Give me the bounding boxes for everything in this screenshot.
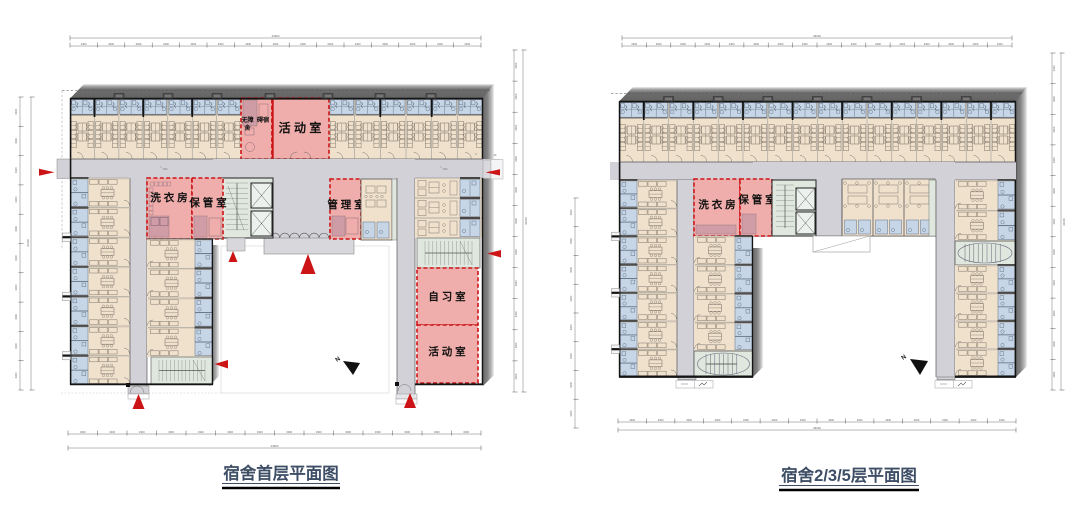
svg-text:3300: 3300: [257, 430, 263, 434]
svg-text:舍: 舍: [243, 124, 251, 132]
svg-text:宿舍2/3/5层平面图: 宿舍2/3/5层平面图: [781, 465, 917, 485]
svg-text:3300: 3300: [658, 418, 664, 422]
svg-text:3300: 3300: [753, 42, 759, 46]
svg-text:3300: 3300: [1052, 126, 1056, 132]
svg-text:保 管 室: 保 管 室: [737, 193, 776, 206]
svg-text:3300: 3300: [14, 343, 18, 349]
svg-text:3300: 3300: [973, 42, 979, 46]
svg-text:3300: 3300: [139, 430, 145, 434]
svg-text:3300: 3300: [300, 42, 306, 46]
svg-text:3300: 3300: [800, 418, 806, 422]
svg-text:31300: 31300: [26, 239, 30, 247]
svg-text:3300: 3300: [569, 209, 573, 215]
svg-text:34200: 34200: [1062, 218, 1066, 226]
svg-text:3300: 3300: [514, 280, 518, 286]
svg-text:3300: 3300: [514, 124, 518, 130]
svg-text:3300: 3300: [569, 295, 573, 301]
svg-text:3300: 3300: [327, 42, 333, 46]
svg-text:B1: B1: [444, 167, 448, 171]
svg-text:3300: 3300: [514, 249, 518, 255]
svg-text:3300: 3300: [656, 42, 662, 46]
svg-text:3300: 3300: [942, 418, 948, 422]
svg-text:3300: 3300: [1052, 96, 1056, 102]
svg-text:自 习 室: 自 习 室: [428, 290, 466, 303]
svg-text:33000: 33000: [813, 426, 821, 430]
svg-text:3300: 3300: [355, 42, 361, 46]
svg-text:3300: 3300: [227, 430, 233, 434]
svg-text:1F: 1F: [493, 153, 497, 157]
svg-text:3300: 3300: [971, 418, 977, 422]
svg-text:3300: 3300: [1052, 341, 1056, 347]
svg-text:3300: 3300: [997, 42, 1003, 46]
svg-text:3300: 3300: [108, 42, 114, 46]
svg-text:33000: 33000: [813, 34, 821, 38]
svg-text:3300: 3300: [569, 266, 573, 272]
svg-text:3300: 3300: [514, 155, 518, 161]
svg-text:3300: 3300: [802, 42, 808, 46]
svg-text:3300: 3300: [875, 42, 881, 46]
svg-text:保 管 室: 保 管 室: [188, 196, 227, 209]
svg-text:3300: 3300: [198, 430, 204, 434]
svg-text:3300: 3300: [14, 255, 18, 261]
svg-text:3300: 3300: [14, 372, 18, 378]
svg-text:3300: 3300: [434, 430, 440, 434]
svg-text:3300: 3300: [686, 418, 692, 422]
svg-text:3300: 3300: [948, 42, 954, 46]
svg-text:3300: 3300: [163, 42, 169, 46]
svg-text:3300: 3300: [1052, 249, 1056, 255]
svg-text:3300: 3300: [924, 42, 930, 46]
svg-text:3300: 3300: [464, 42, 470, 46]
svg-text:3300: 3300: [514, 311, 518, 317]
svg-text:3300: 3300: [999, 418, 1005, 422]
svg-text:管 理 室: 管 理 室: [327, 198, 365, 211]
svg-text:3300: 3300: [375, 430, 381, 434]
svg-text:3300: 3300: [514, 373, 518, 379]
svg-text:3300: 3300: [1052, 218, 1056, 224]
svg-text:3300: 3300: [772, 418, 778, 422]
svg-text:3300: 3300: [190, 42, 196, 46]
svg-text:3300: 3300: [109, 430, 115, 434]
svg-text:3300: 3300: [629, 418, 635, 422]
svg-text:3300: 3300: [729, 42, 735, 46]
svg-text:3300: 3300: [14, 167, 18, 173]
svg-text:3300: 3300: [514, 62, 518, 68]
svg-text:3300: 3300: [404, 430, 410, 434]
svg-text:3300: 3300: [316, 430, 322, 434]
svg-text:3300: 3300: [80, 430, 86, 434]
svg-text:3300: 3300: [382, 42, 388, 46]
svg-text:3300: 3300: [14, 196, 18, 202]
svg-text:3300: 3300: [514, 218, 518, 224]
svg-text:3300: 3300: [851, 42, 857, 46]
svg-text:3300: 3300: [826, 42, 832, 46]
svg-text:3300: 3300: [14, 284, 18, 290]
svg-text:洗 衣 房: 洗 衣 房: [698, 198, 735, 211]
svg-text:23900: 23900: [272, 34, 280, 38]
svg-text:3300: 3300: [899, 42, 905, 46]
svg-text:3300: 3300: [569, 410, 573, 416]
svg-text:碍宿: 碍宿: [257, 116, 269, 124]
svg-text:活 动 室: 活 动 室: [428, 345, 466, 358]
svg-text:34200: 34200: [524, 217, 528, 225]
svg-text:3300: 3300: [778, 42, 784, 46]
svg-text:3300: 3300: [168, 430, 174, 434]
svg-text:3300: 3300: [14, 137, 18, 143]
svg-text:宿舍首层平面图: 宿舍首层平面图: [223, 463, 339, 483]
svg-text:3300: 3300: [680, 42, 686, 46]
svg-text:3300: 3300: [1052, 310, 1056, 316]
svg-text:3300: 3300: [743, 418, 749, 422]
svg-text:3300: 3300: [828, 418, 834, 422]
svg-text:3300: 3300: [885, 418, 891, 422]
svg-text:3300: 3300: [14, 313, 18, 319]
svg-text:3300: 3300: [1052, 157, 1056, 163]
svg-text:3300: 3300: [81, 42, 87, 46]
svg-text:3300: 3300: [715, 418, 721, 422]
svg-text:3300: 3300: [14, 225, 18, 231]
svg-text:3300: 3300: [463, 430, 469, 434]
svg-text:3300: 3300: [514, 186, 518, 192]
svg-text:23900: 23900: [271, 444, 279, 448]
svg-text:3300: 3300: [1052, 279, 1056, 285]
svg-text:无障: 无障: [240, 116, 254, 124]
svg-text:3300: 3300: [1052, 371, 1056, 377]
svg-text:3300: 3300: [245, 42, 251, 46]
svg-text:3300: 3300: [569, 381, 573, 387]
svg-text:3300: 3300: [410, 42, 416, 46]
svg-text:活 动 室: 活 动 室: [279, 120, 322, 135]
svg-text:3300: 3300: [273, 42, 279, 46]
svg-text:3300: 3300: [136, 42, 142, 46]
svg-text:3300: 3300: [218, 42, 224, 46]
svg-text:3300: 3300: [14, 108, 18, 114]
svg-text:3300: 3300: [1052, 65, 1056, 71]
svg-text:3300: 3300: [437, 42, 443, 46]
svg-text:3300: 3300: [1052, 187, 1056, 193]
svg-text:3300: 3300: [514, 342, 518, 348]
svg-text:3300: 3300: [345, 430, 351, 434]
svg-text:3300: 3300: [914, 418, 920, 422]
svg-text:3300: 3300: [569, 324, 573, 330]
svg-text:3300: 3300: [286, 430, 292, 434]
svg-text:3300: 3300: [569, 353, 573, 359]
svg-text:B1: B1: [164, 167, 168, 171]
svg-text:3300: 3300: [631, 42, 637, 46]
svg-text:3300: 3300: [857, 418, 863, 422]
svg-text:洗 衣 房: 洗 衣 房: [150, 191, 187, 204]
svg-text:3300: 3300: [704, 42, 710, 46]
svg-text:3300: 3300: [514, 93, 518, 99]
svg-text:3300: 3300: [569, 238, 573, 244]
